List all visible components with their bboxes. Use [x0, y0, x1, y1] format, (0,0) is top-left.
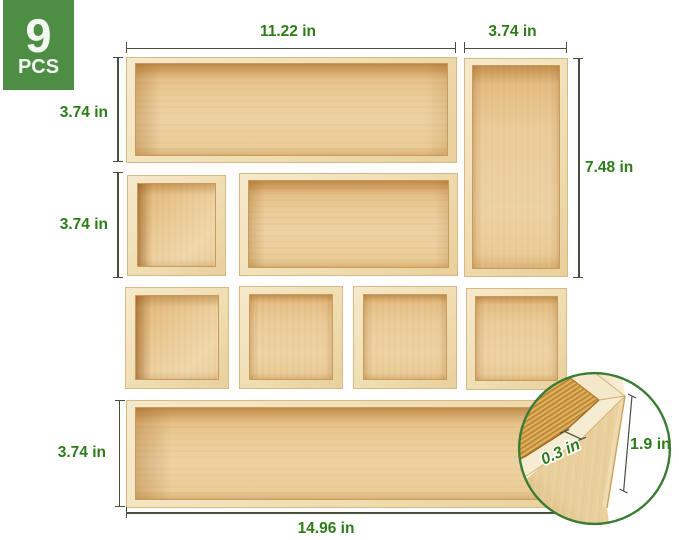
svg-text:1.9 in: 1.9 in: [630, 436, 671, 453]
